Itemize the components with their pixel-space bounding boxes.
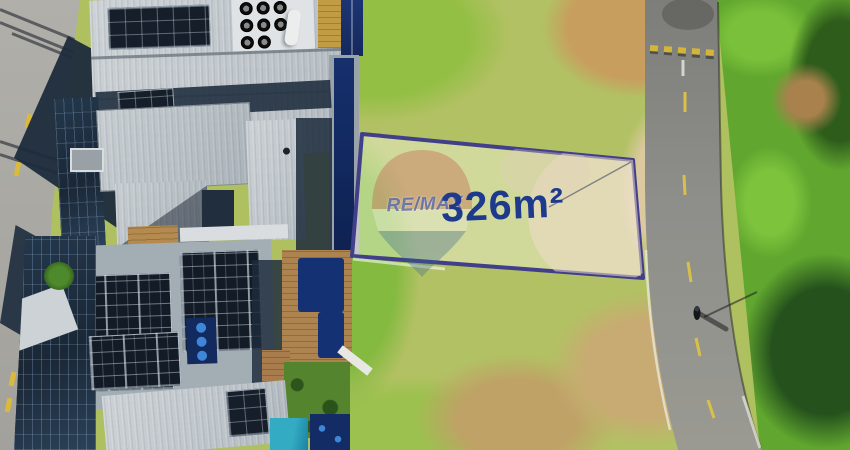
plot-overlay [0, 0, 850, 450]
plot-area-label: 326m² [440, 179, 565, 231]
aerial-listing-photo: RE/MAX 326m² [0, 0, 850, 450]
